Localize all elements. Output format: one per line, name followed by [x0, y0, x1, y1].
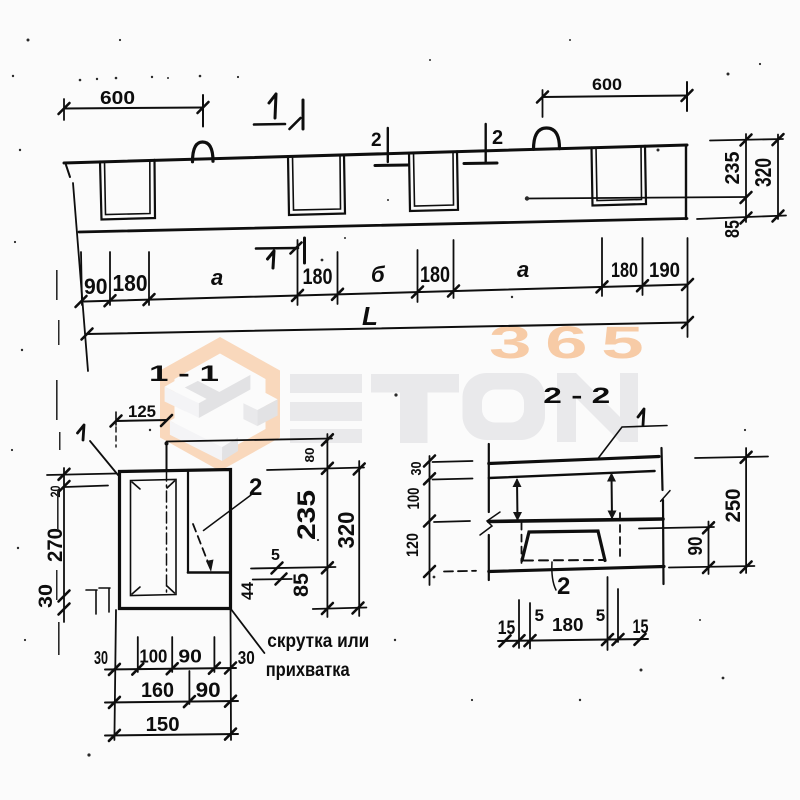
- svg-text:30: 30: [238, 648, 255, 668]
- svg-text:прихватка: прихватка: [266, 660, 350, 681]
- svg-text:2: 2: [492, 127, 503, 149]
- svg-text:L: L: [362, 301, 378, 331]
- svg-text:160: 160: [141, 679, 174, 702]
- svg-text:2: 2: [371, 130, 382, 151]
- svg-text:20: 20: [47, 485, 63, 497]
- svg-text:600: 600: [100, 88, 135, 108]
- svg-text:30: 30: [408, 462, 425, 476]
- svg-text:80: 80: [302, 448, 317, 463]
- svg-text:270: 270: [44, 528, 67, 562]
- svg-text:120: 120: [403, 533, 422, 557]
- svg-text:5: 5: [271, 547, 280, 564]
- svg-text:250: 250: [722, 489, 745, 523]
- svg-text:2 - 2: 2 - 2: [543, 383, 610, 408]
- svg-text:320: 320: [750, 158, 776, 187]
- svg-text:30: 30: [36, 584, 57, 608]
- svg-text:2: 2: [249, 474, 262, 501]
- svg-text:85: 85: [290, 573, 313, 597]
- svg-text:100: 100: [404, 488, 423, 510]
- svg-text:1 - 1: 1 - 1: [149, 361, 219, 386]
- svg-text:180: 180: [611, 259, 638, 282]
- svg-text:б: б: [371, 262, 386, 287]
- svg-text:5: 5: [596, 606, 605, 625]
- svg-text:a: a: [517, 257, 529, 282]
- svg-text:15: 15: [498, 618, 516, 639]
- svg-text:125: 125: [128, 402, 156, 421]
- svg-text:5: 5: [535, 606, 544, 625]
- svg-text:a: a: [211, 265, 223, 290]
- svg-text:85: 85: [722, 220, 744, 238]
- svg-text:320: 320: [333, 512, 359, 549]
- svg-text:180: 180: [113, 270, 148, 296]
- svg-text:2: 2: [557, 573, 570, 600]
- svg-text:180: 180: [420, 262, 450, 287]
- svg-text:90: 90: [84, 274, 108, 299]
- svg-text:90: 90: [196, 679, 221, 702]
- svg-text:235: 235: [293, 490, 321, 540]
- svg-text:235: 235: [722, 152, 744, 185]
- svg-text:150: 150: [146, 714, 180, 736]
- svg-text:180: 180: [303, 264, 333, 289]
- svg-text:90: 90: [685, 537, 707, 556]
- svg-text:30: 30: [94, 648, 108, 668]
- svg-text:скрутка или: скрутка или: [267, 631, 369, 652]
- svg-text:600: 600: [592, 75, 622, 94]
- svg-text:44: 44: [238, 581, 257, 600]
- svg-text:90: 90: [178, 647, 202, 667]
- svg-text:180: 180: [552, 615, 584, 635]
- svg-text:100: 100: [139, 647, 167, 667]
- svg-text:190: 190: [649, 259, 680, 282]
- svg-text:15: 15: [633, 617, 649, 638]
